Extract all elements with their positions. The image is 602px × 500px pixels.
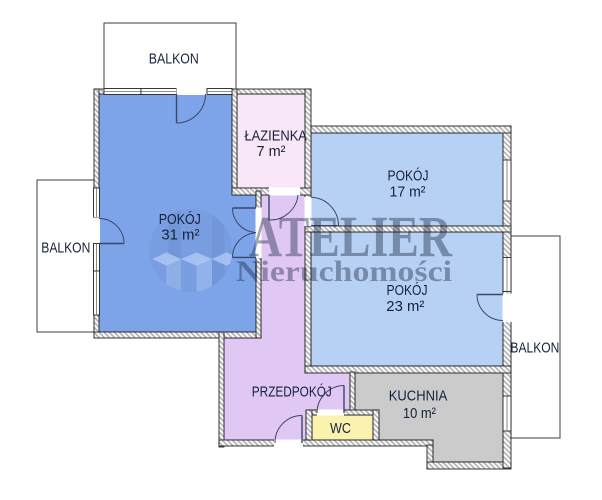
svg-text:POKÓJ: POKÓJ <box>388 167 429 184</box>
svg-text:PRZEDPOKÓJ: PRZEDPOKÓJ <box>252 384 332 401</box>
svg-text:BALKON: BALKON <box>510 339 559 356</box>
svg-text:KUCHNIA: KUCHNIA <box>389 388 448 405</box>
svg-text:17 m²: 17 m² <box>390 183 426 200</box>
svg-text:POKÓJ: POKÓJ <box>159 211 201 228</box>
svg-text:23 m²: 23 m² <box>386 298 424 315</box>
svg-text:7 m²: 7 m² <box>257 143 286 160</box>
svg-text:BALKON: BALKON <box>41 240 90 257</box>
svg-text:POKÓJ: POKÓJ <box>387 282 428 299</box>
svg-text:WC: WC <box>330 420 351 437</box>
svg-text:BALKON: BALKON <box>149 51 199 68</box>
svg-text:31 m²: 31 m² <box>161 227 199 244</box>
svg-text:10 m²: 10 m² <box>403 405 436 422</box>
